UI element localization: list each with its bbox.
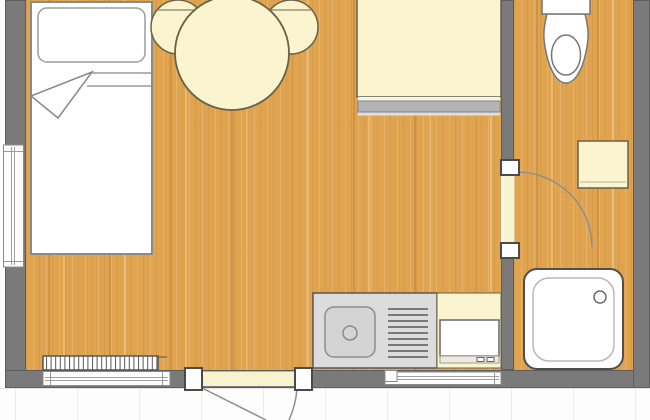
entrance-door-swing-arc	[289, 389, 297, 420]
toilet-bowl-inner	[552, 35, 581, 75]
desk-edge-light	[358, 97, 500, 101]
appliance-knob	[477, 358, 484, 362]
fixtures-layer	[0, 0, 650, 420]
bed-pillow	[38, 8, 145, 62]
window-frame	[43, 372, 170, 386]
bathroom-door-leaf-closed	[504, 175, 515, 243]
floor-plan-canvas	[0, 0, 650, 420]
window-end-cap	[385, 371, 397, 382]
door-post-top	[501, 160, 519, 175]
desk-sideboard	[357, 0, 501, 116]
desk-top	[357, 0, 501, 97]
shower-drain	[594, 291, 606, 303]
door-post-right	[295, 368, 312, 390]
desk-edge-front	[358, 101, 500, 112]
entrance-threshold	[202, 372, 295, 387]
entrance-door	[185, 368, 312, 420]
window-bottom-center	[385, 371, 501, 385]
shower	[524, 269, 623, 369]
window-frame	[4, 145, 24, 267]
toilet-cistern	[542, 0, 590, 14]
washbasin-cabinet	[578, 141, 628, 188]
dining-set	[151, 0, 318, 110]
sink-drain	[343, 326, 357, 340]
appliance-knob	[487, 358, 494, 362]
door-post-left	[185, 368, 202, 390]
toilet	[542, 0, 590, 83]
cooker-appliance	[440, 320, 499, 356]
door-post-bottom	[501, 243, 519, 258]
desk-edge-shadow	[358, 113, 500, 116]
kitchenette	[313, 293, 501, 368]
radiator	[43, 356, 167, 370]
window-bottom-left	[43, 372, 170, 386]
window-frame	[385, 372, 501, 385]
entrance-door-leaf	[202, 388, 266, 420]
shower-tray	[524, 269, 623, 369]
bed	[31, 2, 152, 254]
window-left-wall	[4, 145, 24, 267]
round-dining-table	[175, 0, 289, 110]
washbasin-cabinet-top	[578, 141, 628, 188]
radiator-body	[43, 356, 158, 370]
